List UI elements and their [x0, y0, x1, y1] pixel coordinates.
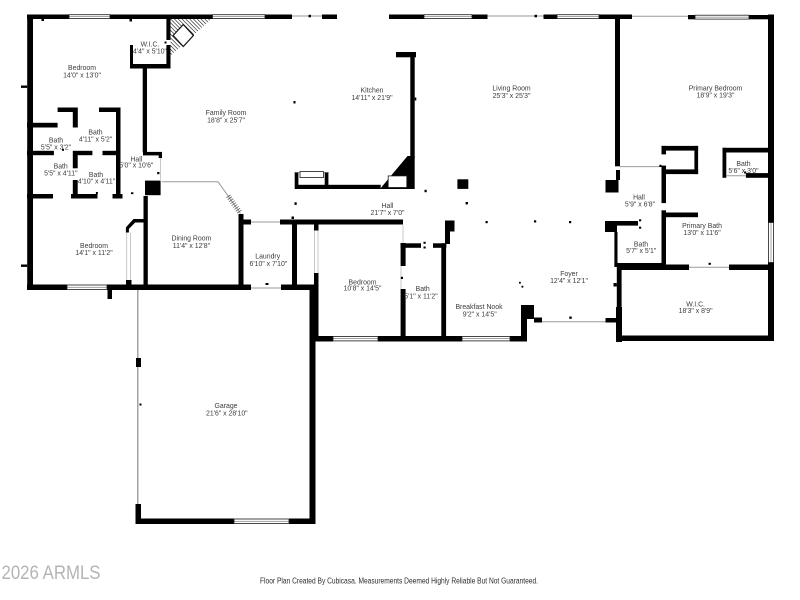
- svg-text:5'5" x 3'2": 5'5" x 3'2": [41, 145, 72, 152]
- svg-text:14'11" x 21'9": 14'11" x 21'9": [351, 95, 393, 102]
- svg-text:Living Room: Living Room: [492, 86, 531, 93]
- svg-text:5'7" x 5'1": 5'7" x 5'1": [626, 248, 657, 255]
- svg-text:Bath: Bath: [416, 286, 430, 293]
- svg-text:21'6" x 28'10": 21'6" x 28'10": [206, 411, 248, 418]
- svg-text:Primary Bedroom: Primary Bedroom: [689, 85, 743, 92]
- svg-text:5'9" x 6'8": 5'9" x 6'8": [625, 201, 656, 208]
- svg-text:Garage: Garage: [215, 403, 238, 410]
- svg-text:Family Room: Family Room: [206, 110, 247, 117]
- svg-text:4'10" x 4'11": 4'10" x 4'11": [78, 178, 116, 185]
- svg-text:Dining Room: Dining Room: [171, 236, 211, 243]
- svg-text:4'11" x 5'2": 4'11" x 5'2": [79, 137, 113, 144]
- svg-text:Bath: Bath: [54, 164, 68, 171]
- svg-text:14'0" x 13'0": 14'0" x 13'0": [63, 73, 101, 80]
- svg-text:Foyer: Foyer: [560, 271, 578, 278]
- svg-text:12'4" x 12'1": 12'4" x 12'1": [550, 278, 588, 285]
- svg-text:Breakfast Nook: Breakfast Nook: [455, 304, 503, 311]
- svg-text:11'4" x 12'8": 11'4" x 12'8": [173, 243, 211, 250]
- svg-text:W.I.C.: W.I.C.: [141, 42, 160, 49]
- svg-text:5'1" x 11'2": 5'1" x 11'2": [404, 294, 438, 301]
- svg-text:Bath: Bath: [736, 161, 750, 168]
- svg-text:25'3" x 25'3": 25'3" x 25'3": [493, 93, 531, 100]
- svg-text:18'8" x 25'7": 18'8" x 25'7": [207, 118, 245, 125]
- svg-text:Kitchen: Kitchen: [361, 88, 384, 95]
- svg-text:14'1" x 11'2": 14'1" x 11'2": [75, 250, 113, 257]
- svg-text:6'10" x 7'10": 6'10" x 7'10": [250, 261, 288, 268]
- svg-text:5'0" x 10'6": 5'0" x 10'6": [119, 163, 154, 170]
- svg-text:4'4" x 5'10": 4'4" x 5'10": [133, 49, 168, 56]
- svg-text:5'6" x 3'0": 5'6" x 3'0": [728, 168, 759, 175]
- svg-text:5'5" x 4'11": 5'5" x 4'11": [44, 171, 78, 178]
- svg-text:21'7" x 7'0": 21'7" x 7'0": [371, 210, 406, 217]
- svg-text:18'3" x 8'9": 18'3" x 8'9": [679, 308, 714, 315]
- svg-text:9'2" x 14'5": 9'2" x 14'5": [463, 311, 498, 318]
- svg-text:Bedroom: Bedroom: [68, 65, 96, 72]
- svg-text:Bath: Bath: [88, 130, 102, 137]
- svg-text:Floor Plan Created By Cubicasa: Floor Plan Created By Cubicasa. Measurem…: [260, 577, 538, 586]
- svg-text:18'9" x 19'3": 18'9" x 19'3": [697, 93, 735, 100]
- svg-text:13'0" x 11'6": 13'0" x 11'6": [683, 230, 721, 237]
- svg-text:2026 ARMLS: 2026 ARMLS: [2, 562, 101, 584]
- svg-text:10'8" x 14'5": 10'8" x 14'5": [344, 286, 382, 293]
- svg-text:Laundry: Laundry: [255, 254, 280, 261]
